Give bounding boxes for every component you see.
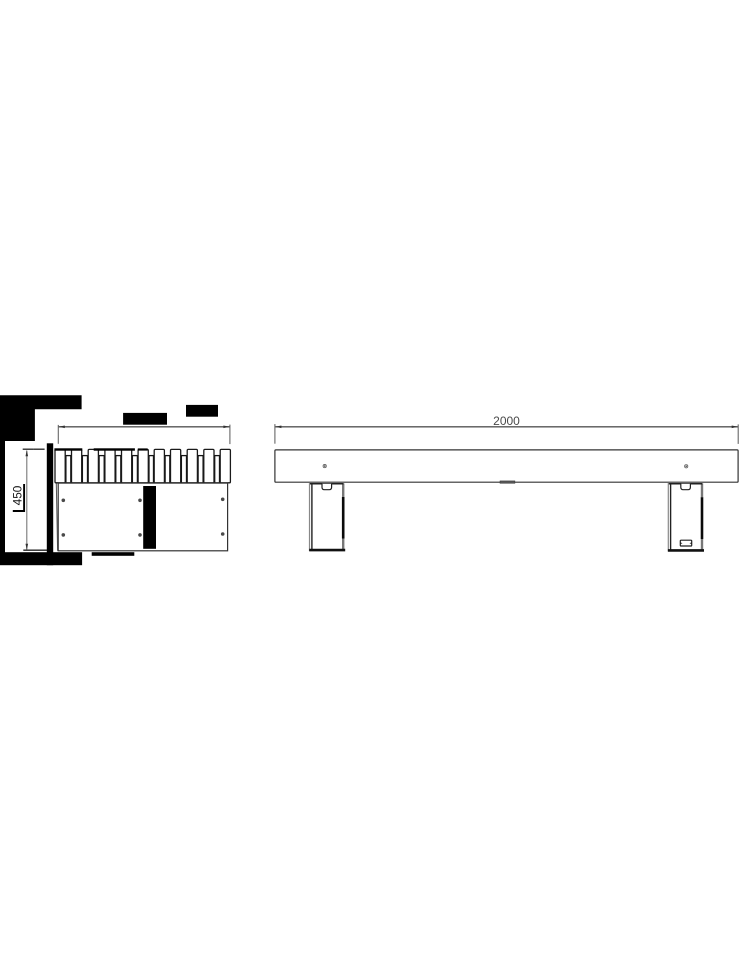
svg-text:450: 450 <box>11 485 25 505</box>
svg-text:2000: 2000 <box>493 414 520 428</box>
